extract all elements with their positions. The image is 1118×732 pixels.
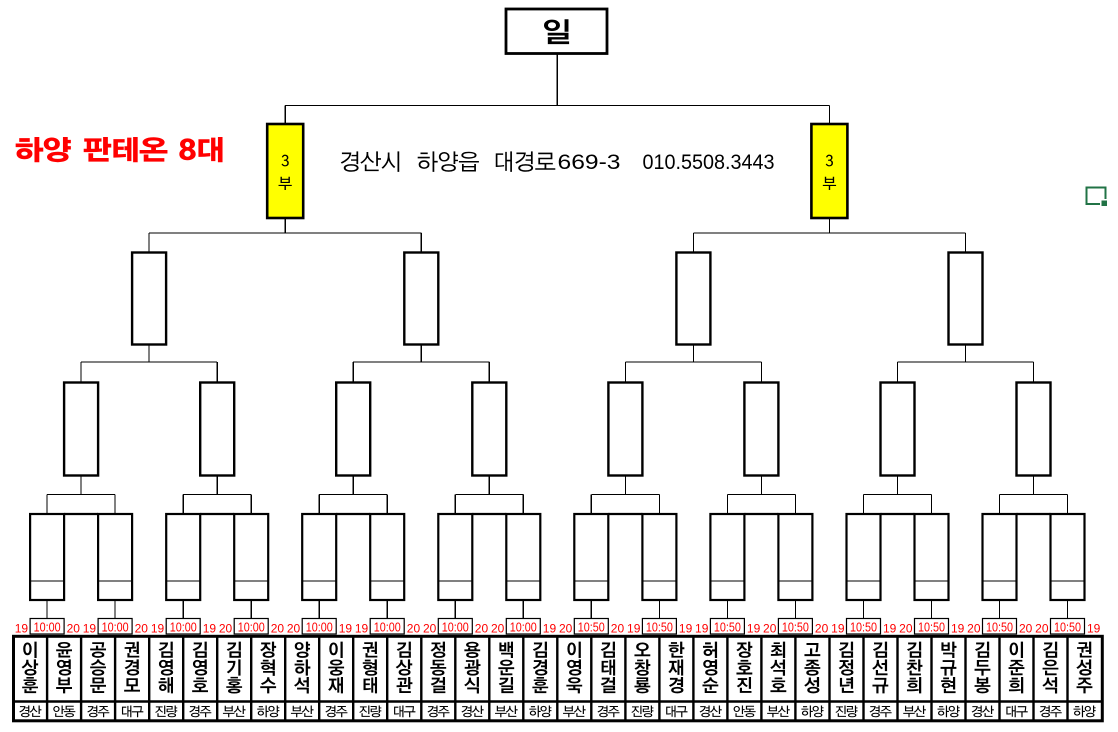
svg-text:19: 19 xyxy=(883,621,897,635)
svg-text:19: 19 xyxy=(339,621,353,635)
svg-text:19: 19 xyxy=(627,621,641,635)
svg-text:20: 20 xyxy=(1019,621,1033,635)
svg-text:10:00: 10:00 xyxy=(34,621,61,635)
svg-text:19: 19 xyxy=(15,621,29,635)
svg-text:20: 20 xyxy=(219,621,233,635)
svg-text:10:00: 10:00 xyxy=(238,621,265,635)
svg-text:20: 20 xyxy=(967,621,981,635)
svg-text:10:00: 10:00 xyxy=(306,621,333,635)
svg-text:19: 19 xyxy=(355,621,369,635)
svg-text:010.5508.3443: 010.5508.3443 xyxy=(643,151,775,174)
svg-text:19: 19 xyxy=(151,621,165,635)
svg-text:19: 19 xyxy=(695,621,709,635)
svg-text:20: 20 xyxy=(899,621,913,635)
svg-text:20: 20 xyxy=(611,621,625,635)
svg-text:10:50: 10:50 xyxy=(782,621,809,635)
svg-text:10:00: 10:00 xyxy=(102,621,129,635)
svg-text:20: 20 xyxy=(271,621,285,635)
svg-text:19: 19 xyxy=(543,621,557,635)
svg-text:10:50: 10:50 xyxy=(646,621,673,635)
svg-text:20: 20 xyxy=(407,621,421,635)
svg-text:10:00: 10:00 xyxy=(170,621,197,635)
svg-text:10:50: 10:50 xyxy=(578,621,605,635)
svg-text:20: 20 xyxy=(815,621,829,635)
svg-text:19: 19 xyxy=(203,621,217,635)
svg-text:20: 20 xyxy=(1035,621,1049,635)
svg-text:10:00: 10:00 xyxy=(442,621,469,635)
svg-text:20: 20 xyxy=(135,621,149,635)
svg-text:19: 19 xyxy=(679,621,693,635)
svg-text:10:50: 10:50 xyxy=(714,621,741,635)
svg-text:10:00: 10:00 xyxy=(374,621,401,635)
svg-text:19: 19 xyxy=(951,621,965,635)
svg-text:10:50: 10:50 xyxy=(850,621,877,635)
svg-text:19: 19 xyxy=(831,621,845,635)
svg-text:19: 19 xyxy=(747,621,761,635)
svg-text:669-3: 669-3 xyxy=(558,151,621,174)
svg-text:20: 20 xyxy=(475,621,489,635)
svg-text:10:50: 10:50 xyxy=(1054,621,1081,635)
svg-text:20: 20 xyxy=(559,621,573,635)
svg-text:20: 20 xyxy=(67,621,81,635)
svg-text:10:50: 10:50 xyxy=(918,621,945,635)
svg-text:10:50: 10:50 xyxy=(986,621,1013,635)
svg-text:20: 20 xyxy=(491,621,505,635)
svg-text:20: 20 xyxy=(763,621,777,635)
svg-text:20: 20 xyxy=(287,621,301,635)
svg-text:19: 19 xyxy=(1087,621,1101,635)
svg-text:20: 20 xyxy=(423,621,437,635)
svg-text:19: 19 xyxy=(83,621,97,635)
svg-text:10:00: 10:00 xyxy=(510,621,537,635)
